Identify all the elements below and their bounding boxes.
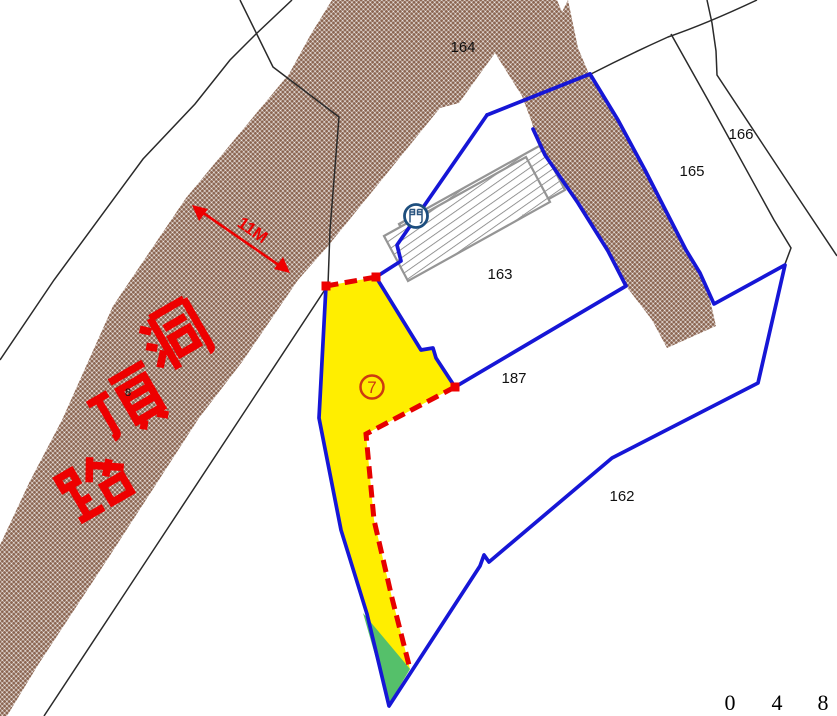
svg-text:4: 4 <box>772 690 783 715</box>
svg-text:164: 164 <box>450 39 475 56</box>
svg-text:8: 8 <box>818 690 829 715</box>
svg-text:166: 166 <box>728 126 753 143</box>
svg-text:187: 187 <box>501 370 526 387</box>
svg-text:0: 0 <box>725 690 736 715</box>
svg-text:162: 162 <box>609 488 634 505</box>
svg-text:165: 165 <box>679 163 704 180</box>
svg-text:8: 8 <box>125 387 131 399</box>
svg-text:7: 7 <box>367 378 376 397</box>
svg-text:163: 163 <box>487 266 512 283</box>
